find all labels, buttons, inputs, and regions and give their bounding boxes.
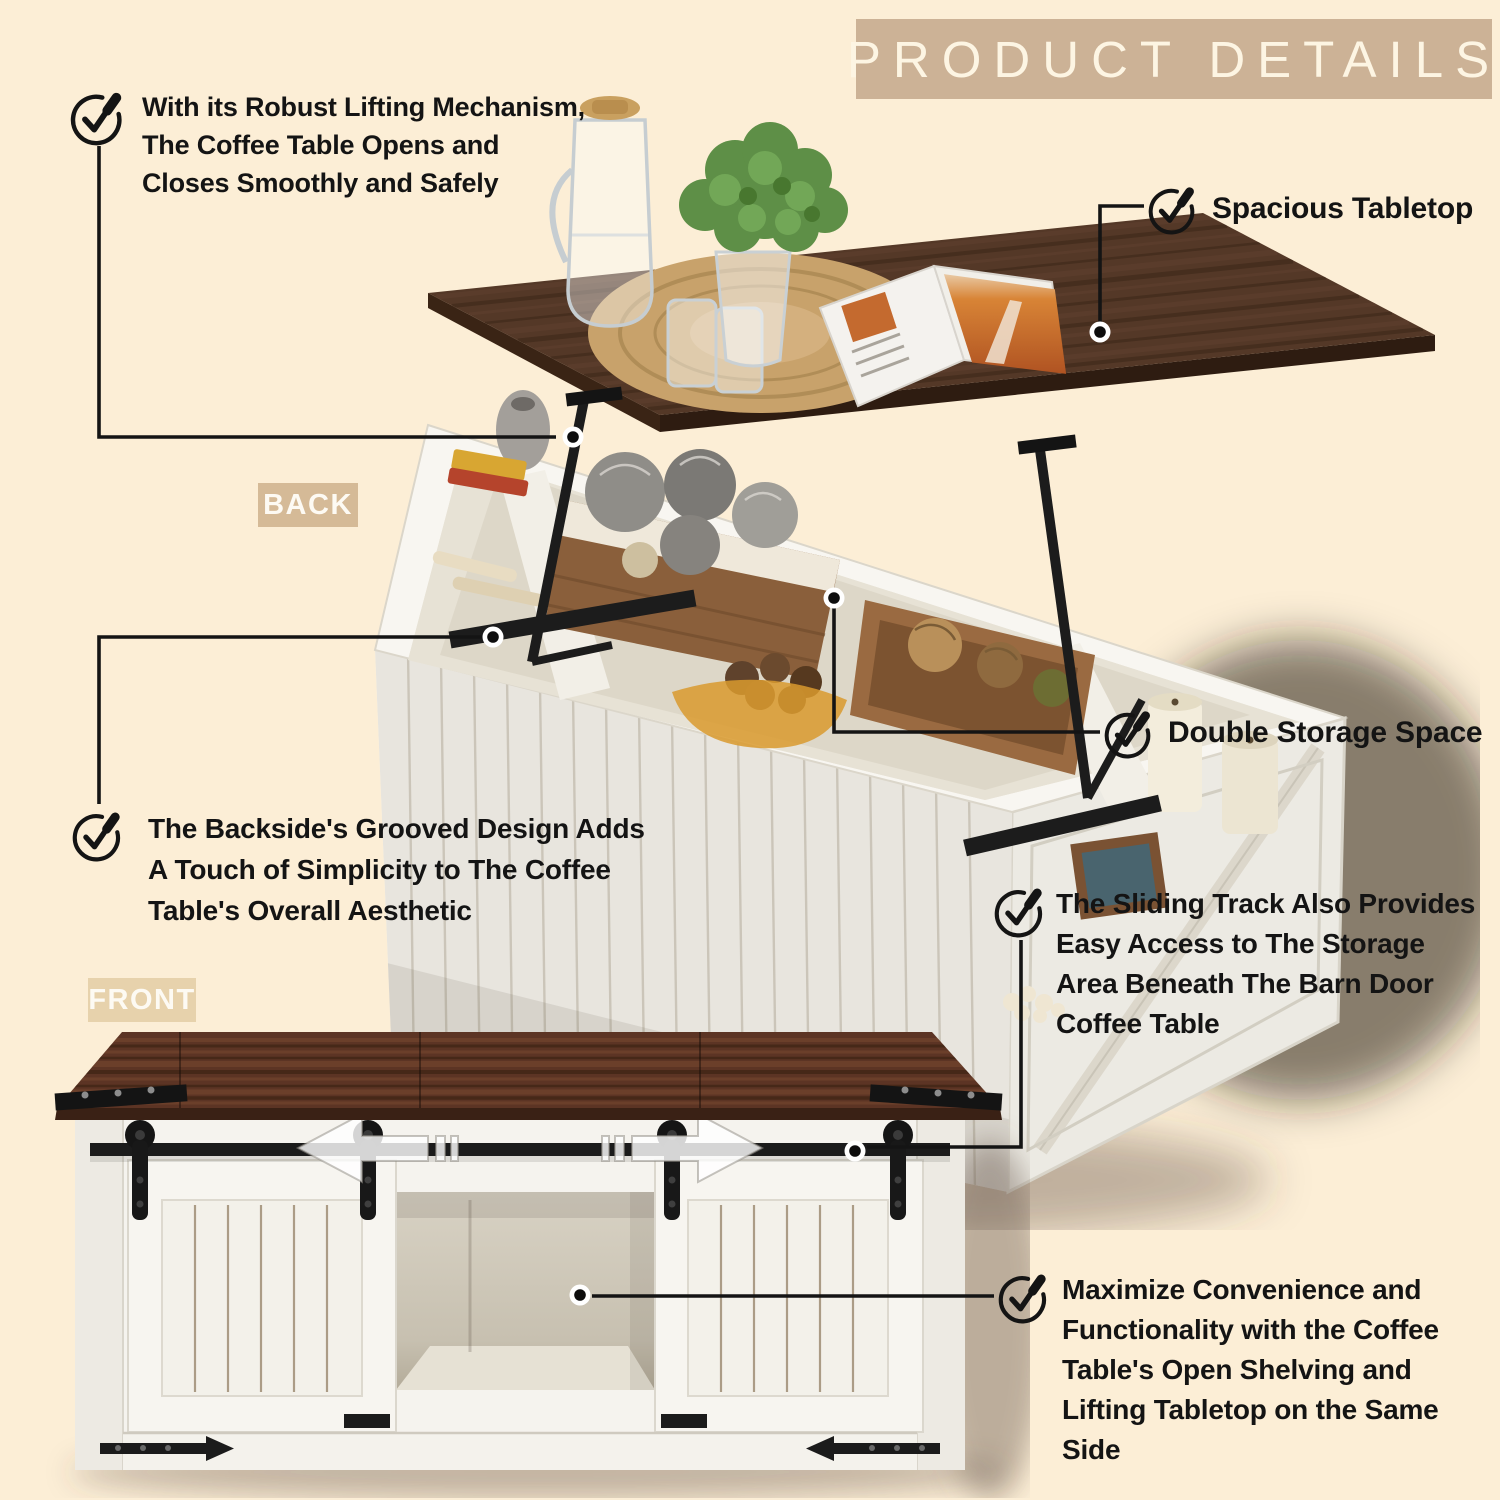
callout-grooved-text: The Backside's Grooved Design Adds A Tou… bbox=[148, 808, 688, 931]
callout-tabletop: Spacious Tabletop bbox=[1148, 183, 1473, 235]
callout-shelving: Maximize Convenience and Functionality w… bbox=[998, 1270, 1500, 1470]
callout-storage: Double Storage Space bbox=[1104, 707, 1482, 759]
front-view-label: FRONT bbox=[88, 978, 196, 1022]
callout-storage-text: Double Storage Space bbox=[1168, 707, 1482, 759]
check-icon bbox=[1148, 183, 1200, 235]
product-details-infographic: PRODUCT DETAILS BACK FRONT With its Robu… bbox=[0, 0, 1500, 1500]
callout-line-grooved bbox=[99, 637, 484, 804]
check-icon bbox=[1104, 707, 1156, 759]
callout-grooved: The Backside's Grooved Design Adds A Tou… bbox=[72, 808, 688, 931]
check-icon bbox=[994, 884, 1048, 938]
callout-lifting: With its Robust Lifting Mechanism, The C… bbox=[70, 88, 622, 202]
callout-sliding-text: The Sliding Track Also Provides Easy Acc… bbox=[1056, 884, 1500, 1044]
page-title: PRODUCT DETAILS bbox=[847, 30, 1500, 89]
callout-sliding: The Sliding Track Also Provides Easy Acc… bbox=[994, 884, 1500, 1044]
check-icon bbox=[998, 1270, 1052, 1324]
back-view-label: BACK bbox=[258, 483, 358, 527]
callout-lifting-text: With its Robust Lifting Mechanism, The C… bbox=[142, 88, 622, 202]
callout-shelving-text: Maximize Convenience and Functionality w… bbox=[1062, 1270, 1500, 1470]
check-icon bbox=[72, 808, 126, 862]
callout-line-tabletop bbox=[1100, 206, 1144, 332]
check-icon bbox=[70, 88, 128, 146]
callout-line-storage bbox=[834, 598, 1100, 732]
callout-tabletop-text: Spacious Tabletop bbox=[1212, 183, 1473, 235]
page-title-box: PRODUCT DETAILS bbox=[856, 19, 1492, 99]
